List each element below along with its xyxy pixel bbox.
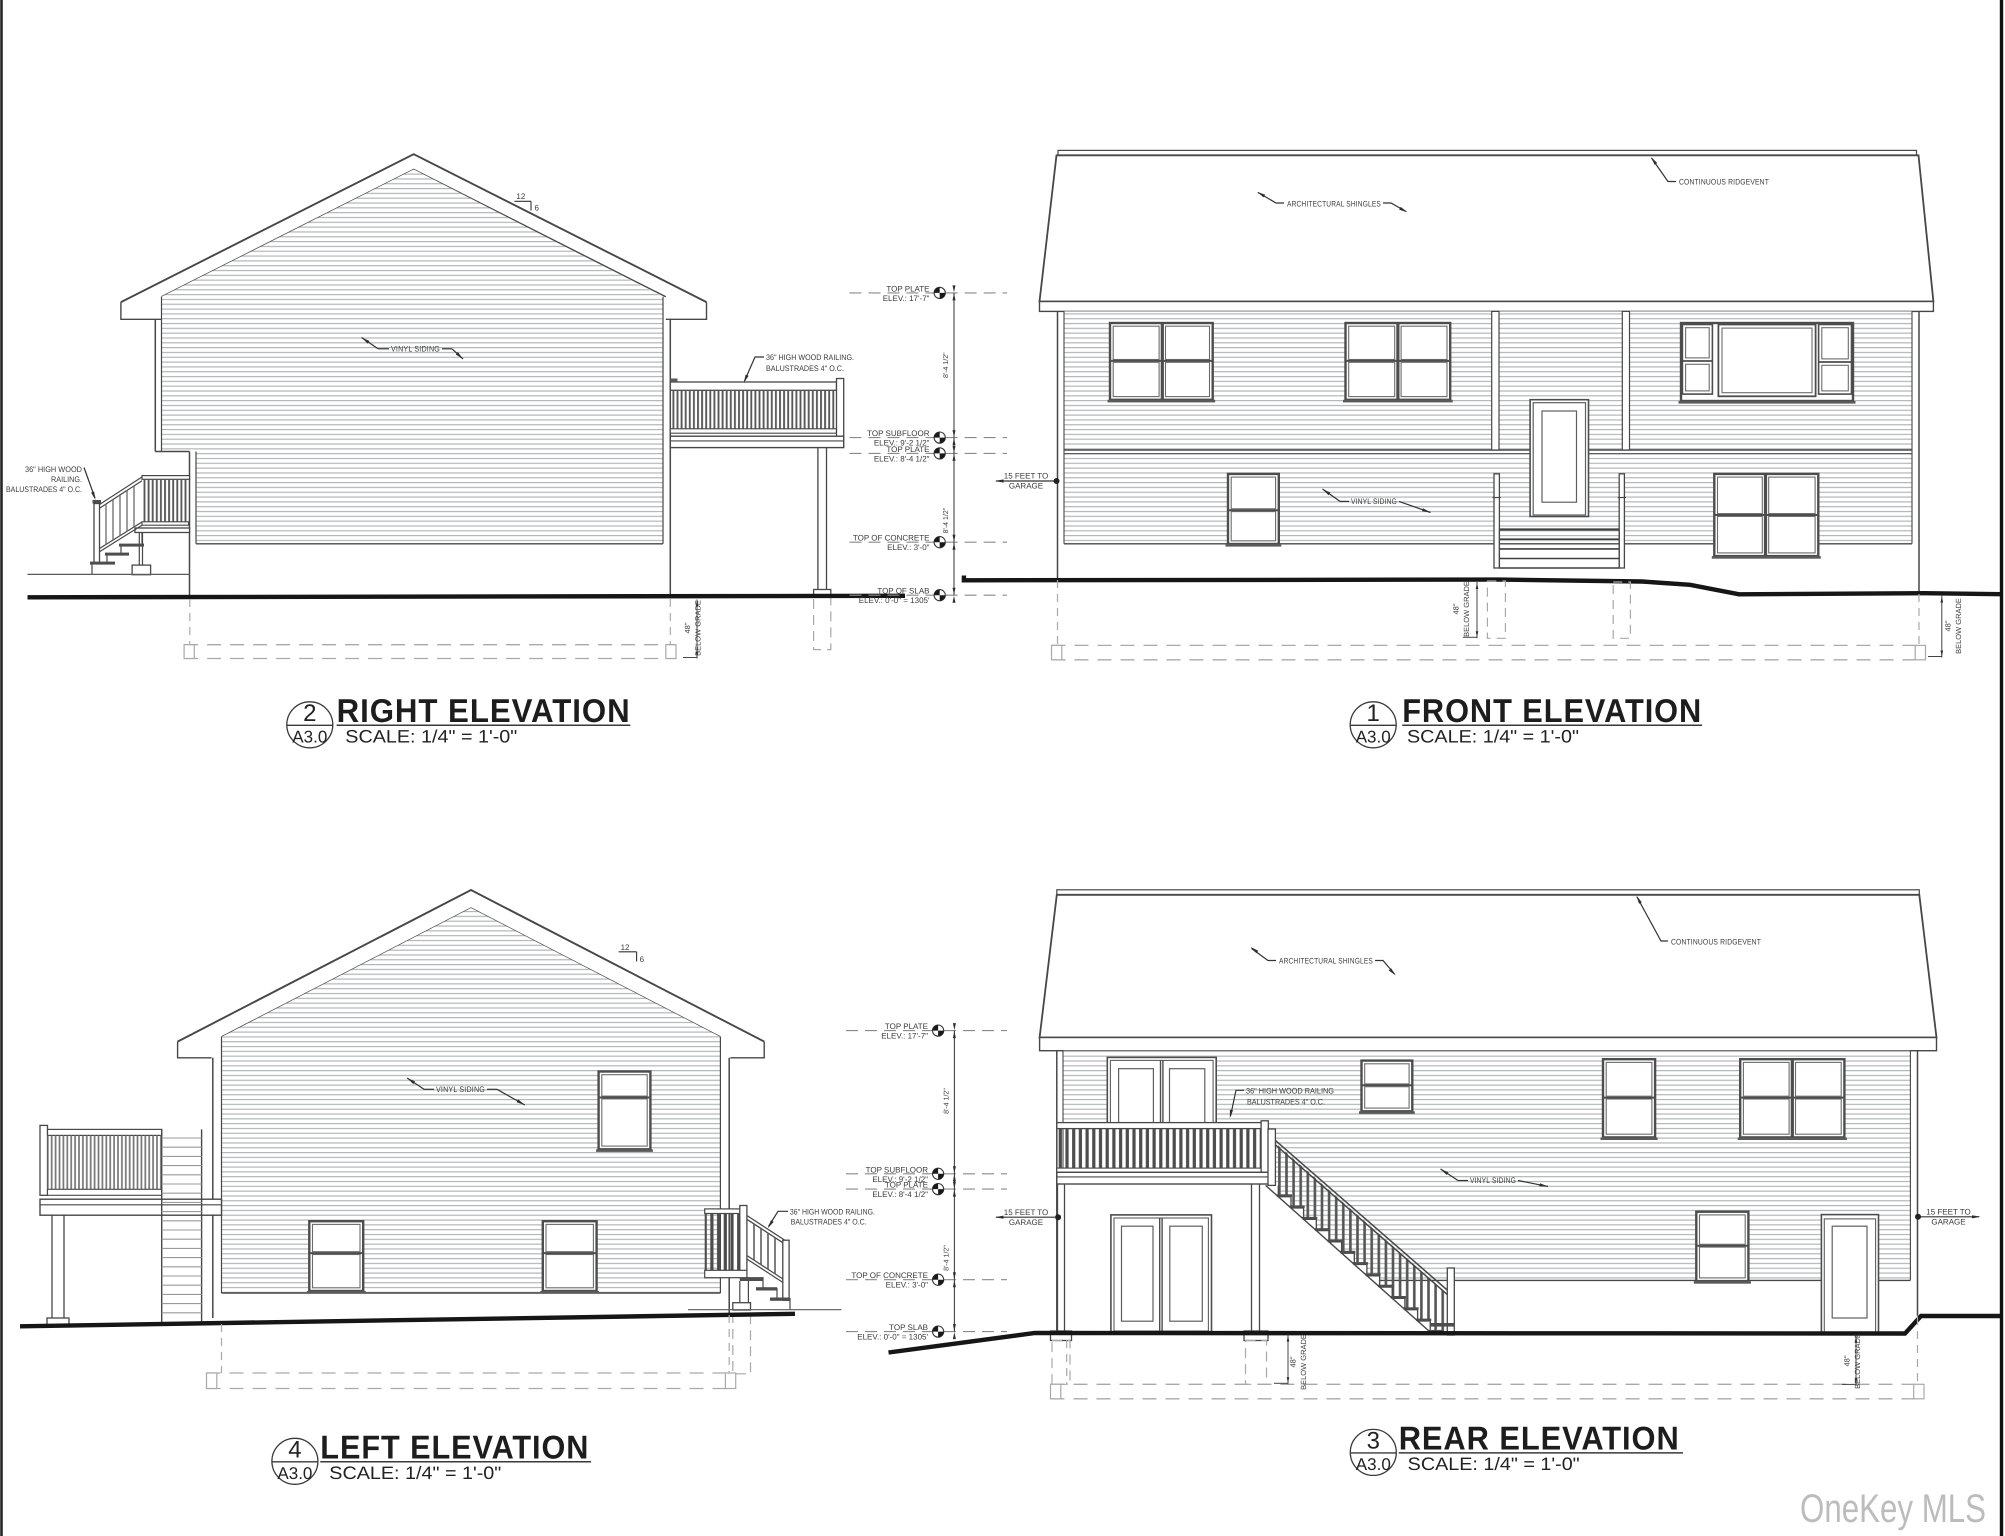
svg-text:BELOW GRADE: BELOW GRADE (694, 600, 703, 656)
svg-text:48": 48" (683, 622, 692, 633)
svg-text:TOP PLATE: TOP PLATE (886, 445, 929, 454)
svg-text:12: 12 (516, 192, 525, 201)
svg-text:A3.0: A3.0 (1356, 727, 1391, 746)
svg-text:TOP SUBFLOOR: TOP SUBFLOOR (866, 1165, 929, 1174)
svg-text:TOP PLATE: TOP PLATE (885, 1022, 928, 1031)
svg-text:ARCHITECTURAL SHINGLES: ARCHITECTURAL SHINGLES (1287, 200, 1381, 209)
svg-text:TOP OF CONCRETE: TOP OF CONCRETE (853, 534, 930, 543)
svg-text:ELEV.: 3'-0": ELEV.: 3'-0" (887, 543, 929, 552)
svg-text:VINYL SIDING: VINYL SIDING (436, 1085, 485, 1094)
svg-text:SCALE: 1/4" = 1'-0": SCALE: 1/4" = 1'-0" (1408, 1454, 1580, 1474)
svg-text:ELEV.: 17'-7": ELEV.: 17'-7" (881, 1032, 928, 1041)
svg-text:ELEV.: 17'-7": ELEV.: 17'-7" (883, 294, 930, 303)
svg-text:15 FEET TO: 15 FEET TO (1926, 1207, 1970, 1216)
svg-text:ELEV.: 8'-4 1/2": ELEV.: 8'-4 1/2" (872, 1190, 928, 1199)
svg-text:6: 6 (535, 204, 540, 213)
svg-text:36" HIGH WOOD: 36" HIGH WOOD (25, 465, 82, 474)
svg-text:TOP OF SLAB: TOP OF SLAB (877, 587, 929, 596)
svg-text:6: 6 (640, 955, 645, 964)
svg-text:TOP PLATE: TOP PLATE (886, 284, 929, 293)
svg-text:REAR ELEVATION: REAR ELEVATION (1399, 1419, 1680, 1456)
svg-text:VINYL SIDING: VINYL SIDING (1351, 497, 1397, 506)
svg-text:ELEV.: 0'-0" = 1305': ELEV.: 0'-0" = 1305' (857, 1333, 928, 1342)
svg-text:SCALE: 1/4" = 1'-0": SCALE: 1/4" = 1'-0" (1407, 726, 1579, 746)
svg-text:BALUSTRADES 4" O.C.: BALUSTRADES 4" O.C. (1247, 1098, 1325, 1107)
svg-text:CONTINUOUS RIDGEVENT: CONTINUOUS RIDGEVENT (1679, 178, 1769, 187)
svg-text:VINYL SIDING: VINYL SIDING (1470, 1176, 1516, 1185)
svg-text:36" HIGH WOOD RAILING.: 36" HIGH WOOD RAILING. (790, 1208, 875, 1217)
svg-text:TOP PLATE: TOP PLATE (885, 1181, 928, 1190)
svg-text:TOP OF CONCRETE: TOP OF CONCRETE (851, 1271, 928, 1280)
svg-text:RIGHT ELEVATION: RIGHT ELEVATION (337, 692, 631, 729)
svg-text:15 FEET TO: 15 FEET TO (1004, 1208, 1048, 1217)
svg-text:15 FEET TO: 15 FEET TO (1004, 472, 1048, 481)
svg-text:OneKey MLS: OneKey MLS (1800, 1487, 1986, 1531)
svg-text:48": 48" (1452, 603, 1461, 614)
svg-text:GARAGE: GARAGE (1009, 1218, 1043, 1227)
svg-text:BELOW GRADE: BELOW GRADE (1299, 1334, 1308, 1390)
svg-text:48": 48" (1289, 1356, 1298, 1367)
svg-text:BALUSTRADES 4" O.C.: BALUSTRADES 4" O.C. (6, 485, 82, 494)
svg-text:8'-4 1/2": 8'-4 1/2" (942, 352, 950, 378)
svg-text:ELEV.: 3'-0": ELEV.: 3'-0" (886, 1281, 928, 1290)
svg-text:12: 12 (621, 943, 630, 952)
svg-text:GARAGE: GARAGE (1931, 1217, 1965, 1226)
svg-text:TOP SLAB: TOP SLAB (889, 1323, 928, 1332)
svg-text:36" HIGH WOOD RAILING.: 36" HIGH WOOD RAILING. (766, 353, 854, 362)
svg-text:A3.0: A3.0 (1356, 1455, 1391, 1474)
svg-text:A3.0: A3.0 (277, 1464, 312, 1483)
svg-text:LEFT ELEVATION: LEFT ELEVATION (320, 1428, 589, 1465)
svg-text:CONTINUOUS RIDGEVENT: CONTINUOUS RIDGEVENT (1671, 938, 1761, 947)
svg-text:36" HIGH WOOD RAILING: 36" HIGH WOOD RAILING (1246, 1087, 1334, 1096)
svg-text:3: 3 (1367, 1427, 1380, 1454)
svg-text:BELOW GRADE: BELOW GRADE (1462, 581, 1471, 637)
svg-text:A3.0: A3.0 (292, 727, 327, 746)
svg-text:4: 4 (288, 1436, 301, 1463)
svg-text:SCALE: 1/4" = 1'-0": SCALE: 1/4" = 1'-0" (329, 1463, 501, 1483)
svg-text:VINYL SIDING: VINYL SIDING (391, 345, 440, 354)
svg-text:FRONT ELEVATION: FRONT ELEVATION (1402, 692, 1702, 729)
svg-text:8'-4 1/2": 8'-4 1/2" (943, 1088, 951, 1114)
svg-text:ELEV.: 8'-4 1/2": ELEV.: 8'-4 1/2" (874, 454, 930, 463)
svg-text:2: 2 (303, 700, 316, 727)
svg-text:RAILING.: RAILING. (51, 475, 82, 484)
svg-text:GARAGE: GARAGE (1009, 482, 1043, 491)
svg-text:8'-4 1/2": 8'-4 1/2" (942, 507, 950, 533)
svg-text:SCALE: 1/4" = 1'-0": SCALE: 1/4" = 1'-0" (345, 726, 517, 746)
svg-text:TOP SUBFLOOR: TOP SUBFLOOR (867, 429, 930, 438)
svg-text:ELEV.: 0'-0" = 1305': ELEV.: 0'-0" = 1305' (859, 596, 930, 605)
svg-text:ARCHITECTURAL SHINGLES: ARCHITECTURAL SHINGLES (1279, 957, 1373, 966)
svg-text:BELOW GRADE: BELOW GRADE (1853, 1333, 1862, 1389)
svg-text:8'-4 1/2": 8'-4 1/2" (943, 1245, 951, 1271)
svg-text:BALUSTRADES 4" O.C.: BALUSTRADES 4" O.C. (766, 364, 844, 373)
svg-text:48": 48" (1944, 620, 1953, 631)
svg-text:BELOW GRADE: BELOW GRADE (1954, 598, 1963, 654)
svg-text:1: 1 (1367, 700, 1380, 727)
svg-text:BALUSTRADES 4" O.C.: BALUSTRADES 4" O.C. (791, 1217, 867, 1226)
svg-text:48": 48" (1843, 1355, 1852, 1366)
